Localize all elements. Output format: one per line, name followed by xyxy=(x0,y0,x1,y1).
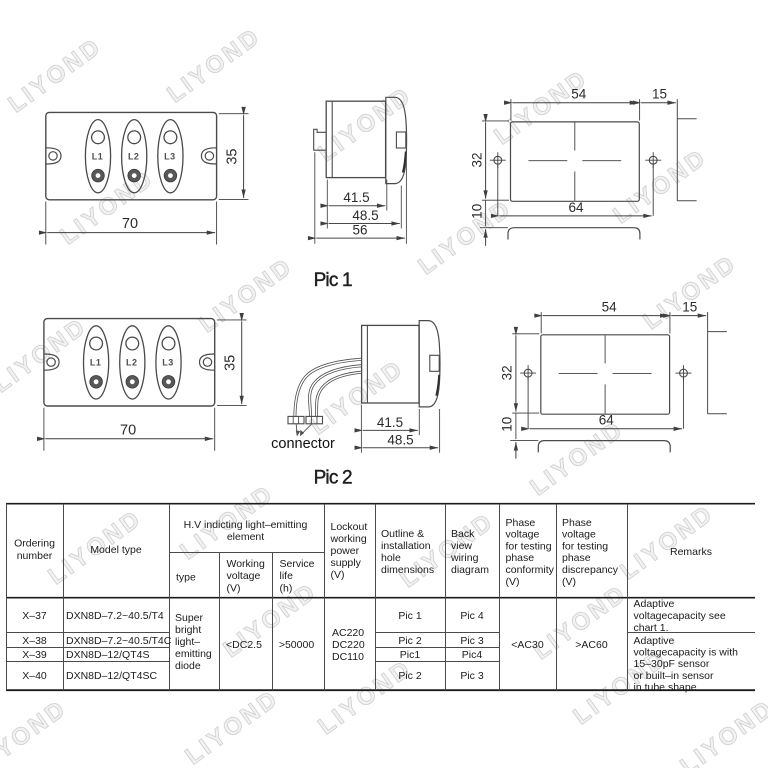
svg-text:phase: phase xyxy=(506,552,535,564)
svg-text:Super: Super xyxy=(175,612,204,624)
svg-text:light–: light– xyxy=(175,636,200,648)
svg-text:Pic 1: Pic 1 xyxy=(398,610,422,622)
svg-text:DXN8D–12/QT4SC: DXN8D–12/QT4SC xyxy=(66,670,157,682)
svg-text:diode: diode xyxy=(175,660,201,672)
svg-text:Pic 2: Pic 2 xyxy=(314,467,352,488)
svg-text:AC220: AC220 xyxy=(332,627,364,639)
svg-text:Adaptive: Adaptive xyxy=(634,598,675,610)
svg-text:diagram: diagram xyxy=(451,564,489,576)
svg-text:<DC2.5: <DC2.5 xyxy=(226,639,262,651)
svg-text:for testing: for testing xyxy=(562,540,608,552)
svg-text:32: 32 xyxy=(500,365,515,380)
svg-text:emitting: emitting xyxy=(175,648,212,660)
svg-text:<AC30: <AC30 xyxy=(511,639,544,651)
svg-text:number: number xyxy=(17,550,53,562)
svg-text:wiring: wiring xyxy=(450,552,479,564)
svg-text:voltage: voltage xyxy=(562,529,596,541)
svg-text:voltage: voltage xyxy=(506,529,540,541)
svg-text:15–30pF sensor: 15–30pF sensor xyxy=(634,658,710,670)
svg-text:41.5: 41.5 xyxy=(377,415,403,430)
svg-text:view: view xyxy=(451,540,472,552)
svg-text:(V): (V) xyxy=(562,576,576,588)
svg-text:(V): (V) xyxy=(331,569,345,581)
svg-text:for testing: for testing xyxy=(506,540,552,552)
svg-text:power: power xyxy=(331,545,360,557)
svg-text:Phase: Phase xyxy=(562,517,592,529)
svg-text:hole: hole xyxy=(381,552,401,564)
svg-text:voltage: voltage xyxy=(227,570,261,582)
svg-text:L3: L3 xyxy=(162,358,174,368)
svg-text:discrepancy: discrepancy xyxy=(562,564,619,576)
svg-text:supply: supply xyxy=(331,557,362,569)
svg-text:DC220: DC220 xyxy=(332,639,365,651)
svg-text:Pic 3: Pic 3 xyxy=(460,635,484,647)
svg-text:48.5: 48.5 xyxy=(352,208,378,223)
svg-text:Pic 2: Pic 2 xyxy=(398,635,422,647)
svg-text:DXN8D–7.2~40.5/T4: DXN8D–7.2~40.5/T4 xyxy=(66,610,164,622)
svg-text:working: working xyxy=(330,533,367,545)
svg-text:54: 54 xyxy=(602,299,618,314)
svg-text:64: 64 xyxy=(599,413,615,428)
svg-text:L2: L2 xyxy=(128,152,140,162)
svg-text:dimensions: dimensions xyxy=(381,564,434,576)
svg-text:Outline &: Outline & xyxy=(381,528,424,540)
svg-text:Back: Back xyxy=(451,528,475,540)
svg-text:DXN8D–7.2~40.5/T4C: DXN8D–7.2~40.5/T4C xyxy=(66,635,172,647)
svg-text:X–40: X–40 xyxy=(22,670,47,682)
svg-text:Pic 3: Pic 3 xyxy=(460,670,484,682)
svg-text:DXN8D–12/QT4S: DXN8D–12/QT4S xyxy=(66,649,149,661)
svg-text:70: 70 xyxy=(122,216,138,232)
svg-text:L3: L3 xyxy=(164,152,176,162)
svg-text:element: element xyxy=(227,531,264,543)
svg-text:Pic4: Pic4 xyxy=(462,649,483,661)
svg-text:L1: L1 xyxy=(92,152,104,162)
svg-text:X–38: X–38 xyxy=(22,635,47,647)
svg-text:L1: L1 xyxy=(90,358,102,368)
svg-text:Adaptive: Adaptive xyxy=(634,635,675,647)
svg-text:connector: connector xyxy=(271,436,335,452)
svg-text:Pic1: Pic1 xyxy=(400,649,421,661)
svg-text:H.V indicting light–emitting: H.V indicting light–emitting xyxy=(184,519,308,531)
svg-text:Model type: Model type xyxy=(90,544,142,556)
svg-text:Lockout: Lockout xyxy=(331,521,368,533)
svg-text:X–39: X–39 xyxy=(22,649,47,661)
svg-text:in tube shape: in tube shape xyxy=(634,681,697,693)
svg-text:L2: L2 xyxy=(126,358,138,368)
svg-text:(V): (V) xyxy=(227,583,241,595)
svg-text:conformity: conformity xyxy=(506,564,555,576)
svg-text:54: 54 xyxy=(571,86,587,101)
svg-text:35: 35 xyxy=(223,355,239,371)
svg-text:Ordering: Ordering xyxy=(14,538,55,550)
svg-text:type: type xyxy=(176,572,196,584)
svg-text:Remarks: Remarks xyxy=(670,546,712,558)
svg-text:chart 1.: chart 1. xyxy=(634,622,669,634)
svg-text:15: 15 xyxy=(652,86,667,101)
svg-text:56: 56 xyxy=(352,223,367,238)
svg-text:Phase: Phase xyxy=(506,517,536,529)
svg-text:Service: Service xyxy=(280,558,315,570)
svg-text:>AC60: >AC60 xyxy=(575,639,608,651)
svg-text:>50000: >50000 xyxy=(279,639,314,651)
svg-text:bright: bright xyxy=(175,624,201,636)
svg-text:32: 32 xyxy=(469,152,484,167)
svg-text:41.5: 41.5 xyxy=(343,190,369,205)
svg-text:voltagecapacity see: voltagecapacity see xyxy=(634,610,726,622)
svg-text:15: 15 xyxy=(682,299,697,314)
svg-text:48.5: 48.5 xyxy=(387,432,413,447)
svg-text:10: 10 xyxy=(469,204,484,219)
svg-text:life: life xyxy=(280,570,294,582)
svg-text:Pic 1: Pic 1 xyxy=(314,270,352,291)
svg-text:installation: installation xyxy=(381,540,431,552)
svg-text:Working: Working xyxy=(227,558,265,570)
svg-text:70: 70 xyxy=(120,422,136,438)
svg-text:35: 35 xyxy=(225,149,241,165)
svg-text:voltagecapacity is with: voltagecapacity is with xyxy=(634,647,739,659)
svg-text:Pic 4: Pic 4 xyxy=(460,610,484,622)
svg-text:Pic 2: Pic 2 xyxy=(398,670,422,682)
svg-text:(V): (V) xyxy=(506,576,520,588)
svg-text:DC110: DC110 xyxy=(332,651,364,663)
svg-text:X–37: X–37 xyxy=(22,610,47,622)
svg-text:phase: phase xyxy=(562,552,591,564)
svg-text:10: 10 xyxy=(500,417,515,432)
svg-text:(h): (h) xyxy=(280,583,293,595)
svg-text:64: 64 xyxy=(568,200,584,215)
svg-text:or built–in sensor: or built–in sensor xyxy=(634,670,714,682)
